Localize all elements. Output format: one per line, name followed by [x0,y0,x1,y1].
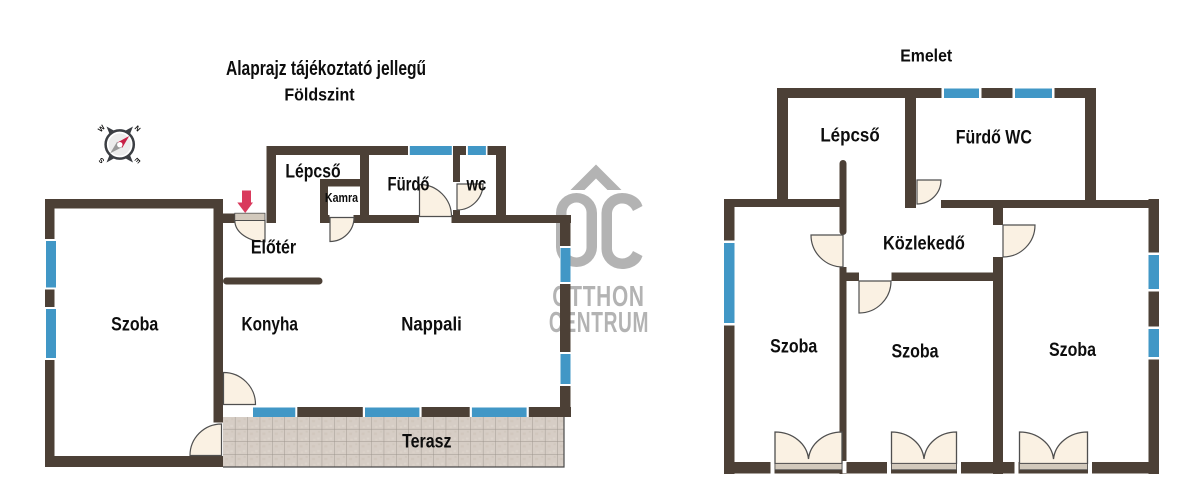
svg-text:Közlekedő: Közlekedő [883,232,965,254]
svg-text:Nappali: Nappali [401,313,462,334]
svg-text:W: W [97,124,107,134]
svg-text:Előtér: Előtér [251,236,296,258]
svg-text:Szoba: Szoba [891,340,939,362]
svg-text:Emelet: Emelet [900,46,952,66]
svg-text:Konyha: Konyha [241,313,298,335]
svg-text:Szoba: Szoba [770,335,818,357]
svg-text:N: N [133,125,142,134]
svg-text:Szoba: Szoba [1049,339,1097,361]
svg-text:Fürdő: Fürdő [388,172,430,195]
svg-text:Lépcső: Lépcső [820,123,879,145]
svg-text:Alaprajz tájékoztató jellegű: Alaprajz tájékoztató jellegű [226,57,426,79]
svg-text:E: E [133,156,141,164]
svg-text:Kamra: Kamra [325,190,359,205]
svg-text:Terasz: Terasz [402,430,452,452]
svg-text:S: S [98,156,106,164]
svg-text:Fürdő WC: Fürdő WC [956,126,1032,148]
svg-text:Földszint: Földszint [284,85,355,105]
svg-text:wc: wc [466,172,487,195]
svg-text:Szoba: Szoba [111,313,159,335]
svg-text:Lépcső: Lépcső [285,160,340,182]
